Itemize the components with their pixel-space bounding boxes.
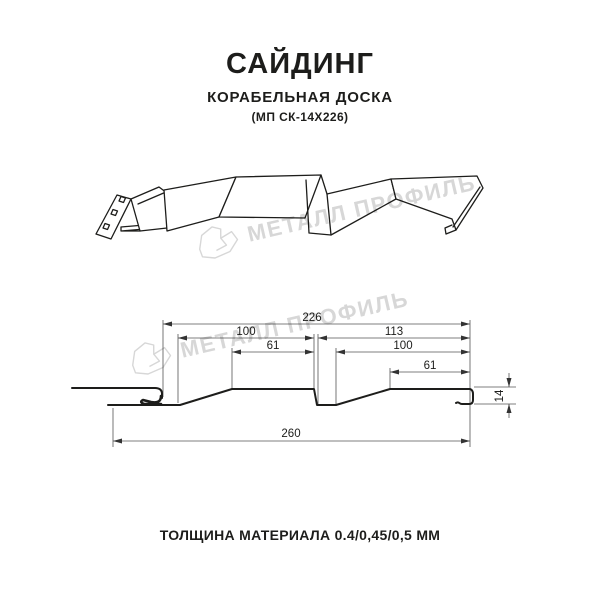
dim-label-right-inner: 61 (424, 360, 437, 372)
dim-label-left-inner: 61 (267, 340, 280, 352)
lock-seam-knot (141, 396, 161, 404)
slope2-face (327, 179, 396, 235)
technical-drawing: 226 100 113 61 100 61 260 14 (0, 0, 600, 600)
dim-label-height: 14 (494, 389, 506, 402)
adjacent-panel-edge (72, 388, 162, 398)
nailing-flange (96, 195, 131, 239)
dimension-lines (113, 324, 509, 441)
dimension-arrows (113, 322, 512, 444)
dim-label-right-flat: 100 (393, 340, 412, 352)
dim-label-right-top: 113 (385, 326, 403, 338)
dim-label-total-width: 260 (281, 428, 300, 440)
product-diagram-page: САЙДИНГ КОРАБЕЛЬНАЯ ДОСКА (МП СК-14Х226) (0, 0, 600, 600)
perspective-view (96, 175, 483, 239)
dim-label-left-flat: 100 (236, 326, 255, 338)
profile-outline (72, 388, 473, 405)
dimension-labels: 226 100 113 61 100 61 260 14 (236, 312, 506, 440)
material-thickness-note: ТОЛЩИНА МАТЕРИАЛА 0.4/0,45/0,5 ММ (0, 527, 600, 543)
extension-lines (113, 320, 516, 447)
dim-label-width-top: 226 (302, 312, 321, 324)
cross-section-view: 226 100 113 61 100 61 260 14 (72, 312, 516, 447)
